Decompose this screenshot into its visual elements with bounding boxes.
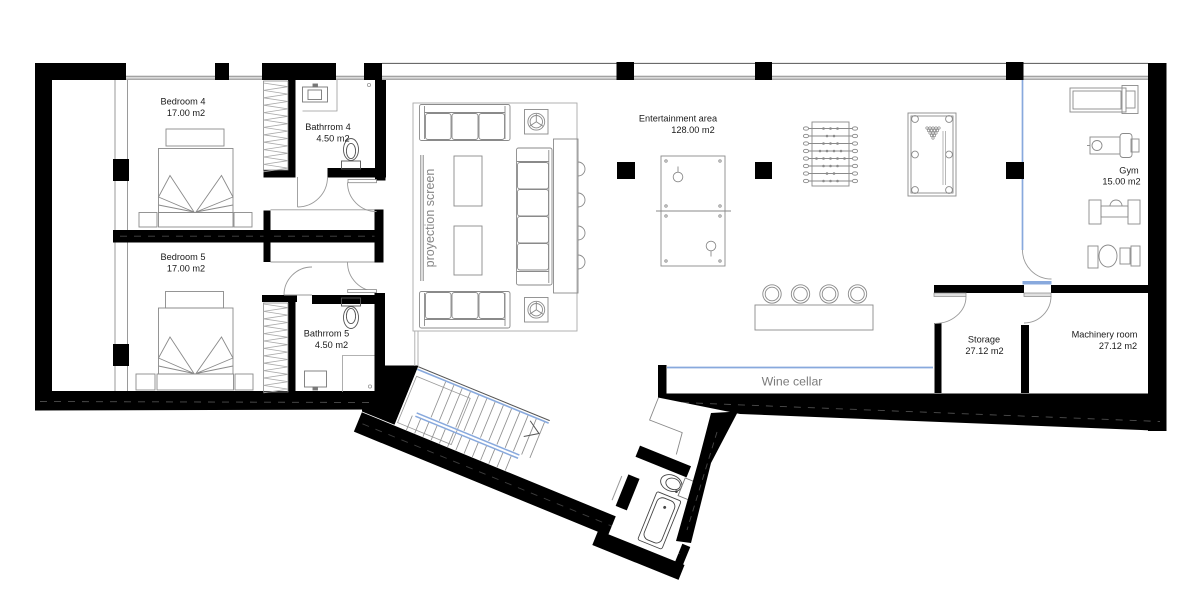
svg-text:Bathrrom 5: Bathrrom 5: [304, 329, 349, 339]
svg-text:128.00 m2: 128.00 m2: [671, 125, 714, 135]
svg-text:Bedroom 4: Bedroom 4: [161, 97, 206, 107]
svg-text:Wine cellar: Wine cellar: [762, 375, 823, 389]
svg-text:4.50 m2: 4.50 m2: [315, 340, 348, 350]
svg-text:27.12 m2: 27.12 m2: [965, 346, 1003, 356]
svg-text:Bathrrom 4: Bathrrom 4: [305, 122, 350, 132]
svg-text:17.00 m2: 17.00 m2: [167, 264, 205, 274]
svg-text:Storage: Storage: [968, 335, 1000, 345]
svg-text:Machinery room: Machinery room: [1072, 330, 1138, 340]
svg-text:15.00 m2: 15.00 m2: [1102, 177, 1140, 187]
svg-text:Gym: Gym: [1119, 166, 1139, 176]
svg-text:Entertainment area: Entertainment area: [639, 114, 718, 124]
svg-text:27.12 m2: 27.12 m2: [1099, 341, 1137, 351]
svg-text:Bedroom 5: Bedroom 5: [161, 252, 206, 262]
svg-text:proyection screen: proyection screen: [423, 169, 437, 268]
svg-text:17.00 m2: 17.00 m2: [167, 108, 205, 118]
svg-text:4.50 m2: 4.50 m2: [316, 134, 349, 144]
